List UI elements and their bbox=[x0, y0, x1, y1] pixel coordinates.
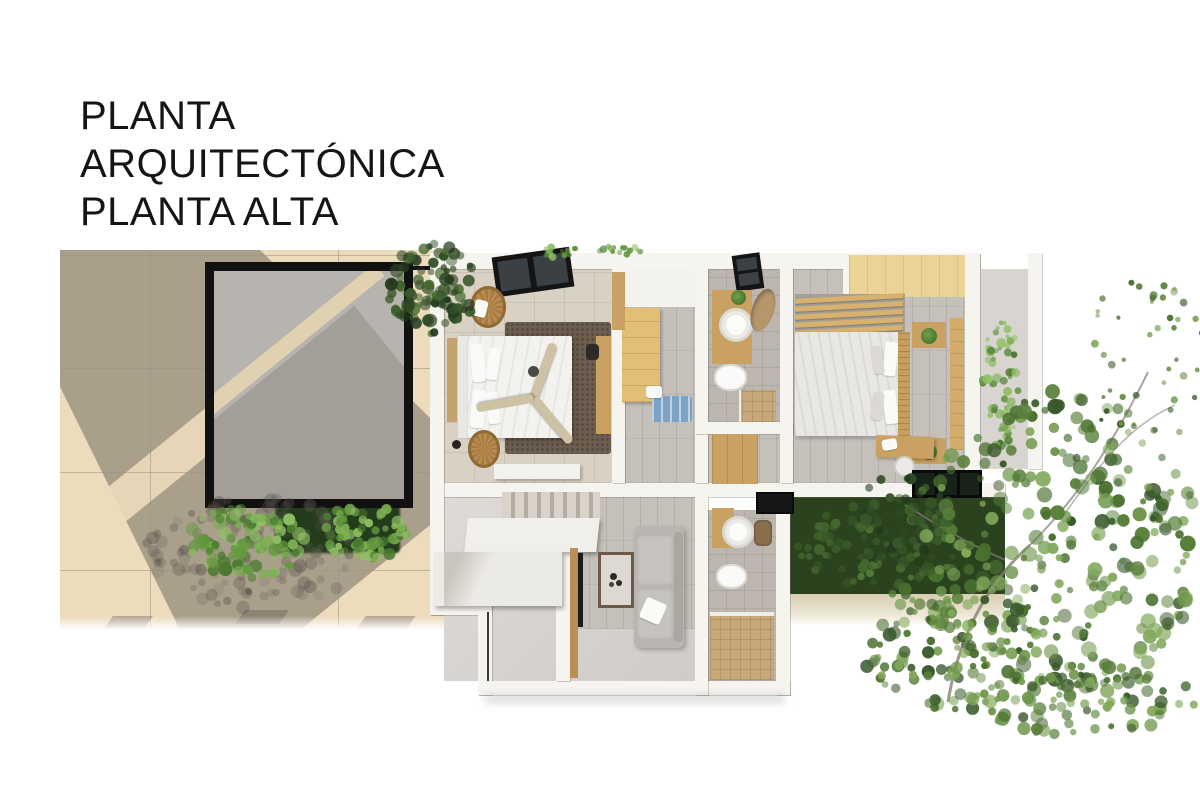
stair-upper-flight bbox=[502, 492, 600, 518]
steel-beam bbox=[393, 266, 433, 270]
wall-right-upper bbox=[965, 253, 980, 497]
paving-joint-v1 bbox=[150, 250, 151, 630]
double-height-void bbox=[205, 262, 413, 508]
sofa bbox=[634, 526, 684, 648]
title-line-1: PLANTA bbox=[80, 92, 445, 140]
bed2-headboard bbox=[898, 332, 910, 436]
architectural-plan-render: PLANTA ARQUITECTÓNICA PLANTA ALTA bbox=[0, 0, 1200, 795]
sink-1 bbox=[719, 308, 753, 342]
wall-courtyard bbox=[1028, 253, 1042, 469]
floor-drain bbox=[245, 588, 252, 595]
courtyard-floor bbox=[980, 269, 1028, 469]
shower-2 bbox=[710, 616, 774, 680]
garden-path bbox=[790, 594, 1005, 626]
shower-1 bbox=[742, 390, 776, 422]
tv bbox=[578, 553, 583, 627]
desk-chair-1 bbox=[586, 344, 599, 360]
title-line-3: PLANTA ALTA bbox=[80, 188, 445, 236]
stair-landing bbox=[464, 518, 600, 552]
toilet-2 bbox=[716, 564, 747, 589]
wall-right-lower bbox=[776, 497, 790, 695]
wall-left-upper bbox=[430, 253, 444, 497]
nightstand-bottom bbox=[468, 430, 500, 468]
bed2 bbox=[795, 332, 901, 436]
bedroom1-door bbox=[612, 272, 625, 330]
towel-basket bbox=[754, 520, 772, 546]
floor-lamp bbox=[452, 440, 461, 449]
wall-bath1 bbox=[695, 269, 708, 483]
wall-mirror bbox=[447, 338, 457, 422]
folded-linen bbox=[646, 386, 662, 398]
skylight-bathroom1 bbox=[732, 252, 765, 292]
corner-window bbox=[912, 470, 982, 498]
tv-panel bbox=[570, 548, 578, 678]
wall-bedroom2 bbox=[780, 269, 793, 483]
wardrobe-2 bbox=[950, 318, 964, 450]
stair-side-shadow bbox=[444, 552, 504, 606]
garden-window bbox=[756, 492, 794, 514]
paving-joint-h0 bbox=[60, 255, 460, 256]
tree-branch-1 bbox=[1030, 372, 1148, 545]
garden-lawn bbox=[790, 490, 1005, 594]
closet-shelf bbox=[625, 269, 695, 307]
plywood-deck bbox=[849, 255, 965, 297]
console-plant-top bbox=[921, 328, 937, 344]
paving-joint-h3 bbox=[60, 570, 460, 571]
terrace-edge-fade bbox=[60, 616, 460, 630]
house-drop-shadow bbox=[485, 695, 785, 703]
coffee-table bbox=[598, 552, 634, 608]
planter-bed bbox=[275, 505, 400, 553]
wall-bottom bbox=[478, 681, 790, 695]
shower-glass-1 bbox=[739, 390, 741, 422]
bed-bench bbox=[494, 464, 580, 479]
title-line-2: ARQUITECTÓNICA bbox=[80, 140, 445, 188]
suitcase bbox=[652, 396, 692, 422]
bed1-headboard bbox=[458, 336, 468, 438]
wall-bath2 bbox=[695, 497, 708, 695]
linen-cabinet bbox=[712, 434, 758, 484]
wall-bath1-bottom bbox=[695, 422, 793, 434]
glass-rail bbox=[487, 612, 489, 681]
vanity-plant-1 bbox=[731, 290, 746, 305]
tree-branch-3 bbox=[1060, 405, 1175, 520]
page-title: PLANTA ARQUITECTÓNICA PLANTA ALTA bbox=[80, 92, 445, 236]
toilet-1 bbox=[714, 364, 747, 391]
sink-2 bbox=[722, 516, 754, 548]
